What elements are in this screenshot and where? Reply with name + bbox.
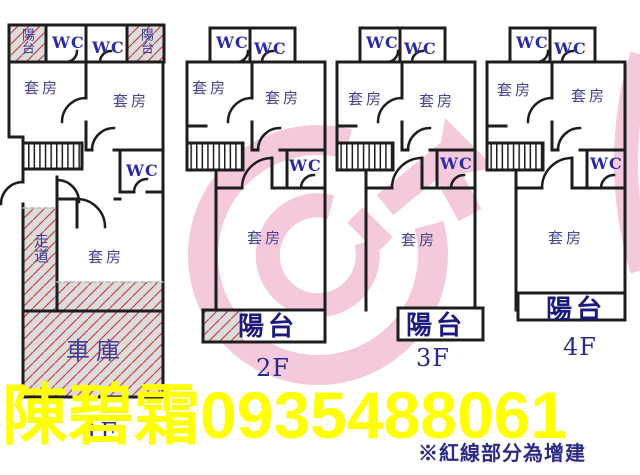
room-label-suite-ul-2f: 套房: [192, 77, 228, 98]
room-label-wc2-4f: WC: [554, 39, 587, 58]
room-label-balcony-2f: 陽台: [238, 306, 298, 343]
room-label-balcony-tr-1f: 陽台: [136, 28, 155, 54]
room-label-balcony-tl-1f: 陽台: [17, 28, 36, 54]
room-label-wc1-4f: WC: [516, 33, 549, 52]
room-label-balcony-3f: 陽台: [406, 305, 466, 342]
room-label-wc-mid-2f: WC: [289, 156, 322, 175]
room-label-suite-lower-3f: 套房: [401, 229, 437, 250]
room-label-suite-lower-2f: 套房: [247, 227, 283, 248]
room-label-suite-lower-4f: 套房: [548, 227, 584, 248]
room-label-suite-ur-1f: 套房: [113, 90, 149, 111]
stairs-1f: [23, 143, 82, 169]
floor-plan-4f: [487, 28, 625, 320]
room-label-wc2-1f: WC: [92, 38, 125, 57]
room-label-suite-ur-2f: 套房: [265, 87, 301, 108]
room-label-balcony-4f: 陽台: [546, 289, 606, 326]
hatched-balcony-2f: [203, 310, 243, 342]
hatched-band: [57, 282, 163, 311]
room-label-wc1-3f: WC: [366, 33, 399, 52]
room-label-suite-ul-3f: 套房: [348, 88, 384, 109]
room-label-suite-ur-3f: 套房: [419, 90, 455, 111]
room-label-wc-mid-1f: WC: [126, 161, 159, 180]
red-line-note: ※紅線部分為增建: [418, 437, 586, 466]
room-label-wc-mid-3f: WC: [440, 154, 473, 173]
floor-label-4f: 4F: [563, 333, 597, 361]
room-label-wc2-2f: WC: [254, 39, 287, 58]
room-label-suite-ul-4f: 套房: [497, 79, 533, 100]
room-label-suite-ul-1f: 套房: [24, 77, 60, 98]
room-label-suite-ur-4f: 套房: [571, 85, 607, 106]
room-label-wc-mid-4f: WC: [590, 154, 623, 173]
floor-label-3f: 3F: [416, 344, 450, 372]
room-label-wc2-3f: WC: [404, 39, 437, 58]
room-label-corridor-1f: 走道: [31, 233, 52, 263]
floor-plan-sheet: 陽台 WC WC 陽台 套房 套房 WC 走道 套房 車庫 1F WC WC 套…: [0, 0, 640, 475]
room-label-wc1-1f: WC: [52, 33, 85, 52]
room-label-garage-1f: 車庫: [66, 331, 126, 366]
room-label-suite-center-1f: 套房: [88, 246, 124, 267]
room-label-wc1-2f: WC: [216, 33, 249, 52]
